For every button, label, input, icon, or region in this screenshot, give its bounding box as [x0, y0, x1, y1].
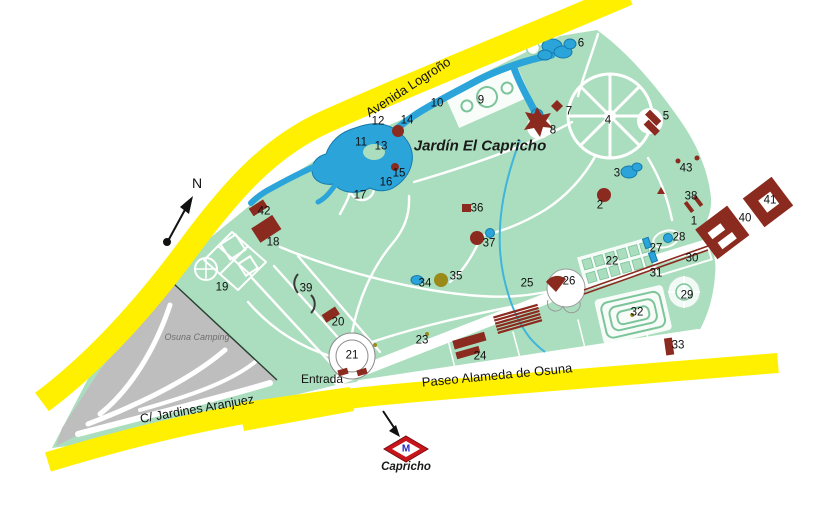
- poi-marker-15: 15: [393, 168, 406, 180]
- poi-marker-4: 4: [605, 115, 611, 127]
- camping-label: Osuna Camping: [164, 332, 229, 342]
- poi-marker-21: 21: [346, 350, 359, 362]
- poi-marker-7: 7: [566, 106, 572, 118]
- poi-marker-11: 11: [355, 137, 367, 149]
- pond-3b: [632, 163, 642, 171]
- poi-marker-6: 6: [578, 38, 584, 50]
- pond-28: [664, 234, 673, 243]
- poi-marker-5: 5: [663, 111, 669, 123]
- poi-marker-24: 24: [474, 351, 487, 363]
- poi-marker-2: 2: [597, 200, 603, 212]
- metro-station-label: Capricho: [381, 461, 431, 473]
- park-map: Jardín El Capricho Avenida Logroño Paseo…: [0, 0, 827, 512]
- poi-marker-9: 9: [478, 95, 484, 107]
- poi-marker-27: 27: [650, 243, 663, 255]
- poi-marker-34: 34: [419, 278, 432, 290]
- compass-north-label: N: [192, 175, 202, 191]
- poi-marker-16: 16: [380, 177, 393, 189]
- poi-marker-29: 29: [681, 290, 694, 302]
- poi-marker-38: 38: [685, 191, 698, 203]
- poi-marker-40: 40: [739, 213, 752, 225]
- poi-marker-26: 26: [563, 276, 576, 288]
- poi-marker-36: 36: [471, 203, 484, 215]
- poi-marker-1: 1: [691, 216, 697, 228]
- poi-marker-33: 33: [672, 340, 685, 352]
- poi-marker-17: 17: [354, 190, 367, 202]
- poi-marker-28: 28: [673, 232, 686, 244]
- poi-marker-22: 22: [606, 256, 619, 268]
- poi-marker-43: 43: [680, 163, 693, 175]
- pond-37: [486, 229, 495, 238]
- poi-marker-12: 12: [372, 116, 385, 128]
- poi-marker-19: 19: [216, 282, 229, 294]
- poi-marker-35: 35: [450, 271, 463, 283]
- monument-35: [434, 273, 448, 287]
- poi-marker-25: 25: [521, 278, 534, 290]
- poi-marker-23: 23: [416, 335, 429, 347]
- poi-marker-13: 13: [375, 141, 388, 153]
- poi-marker-14: 14: [401, 115, 414, 127]
- poi-marker-10: 10: [431, 98, 444, 110]
- poi-marker-18: 18: [267, 237, 280, 249]
- poi-marker-41: 41: [764, 195, 777, 207]
- entrance-label: Entrada: [301, 372, 343, 386]
- poi-marker-32: 32: [631, 307, 644, 319]
- poi-marker-8: 8: [550, 125, 556, 137]
- poi-marker-30: 30: [686, 253, 699, 265]
- poi-marker-37: 37: [483, 238, 496, 250]
- poi-marker-39: 39: [300, 283, 313, 295]
- poi-marker-3: 3: [614, 168, 620, 180]
- poi-marker-31: 31: [650, 268, 663, 280]
- park-title: Jardín El Capricho: [414, 138, 547, 155]
- poi-marker-42: 42: [258, 206, 271, 218]
- poi-marker-20: 20: [332, 317, 345, 329]
- metro-m-letter: M: [402, 444, 410, 455]
